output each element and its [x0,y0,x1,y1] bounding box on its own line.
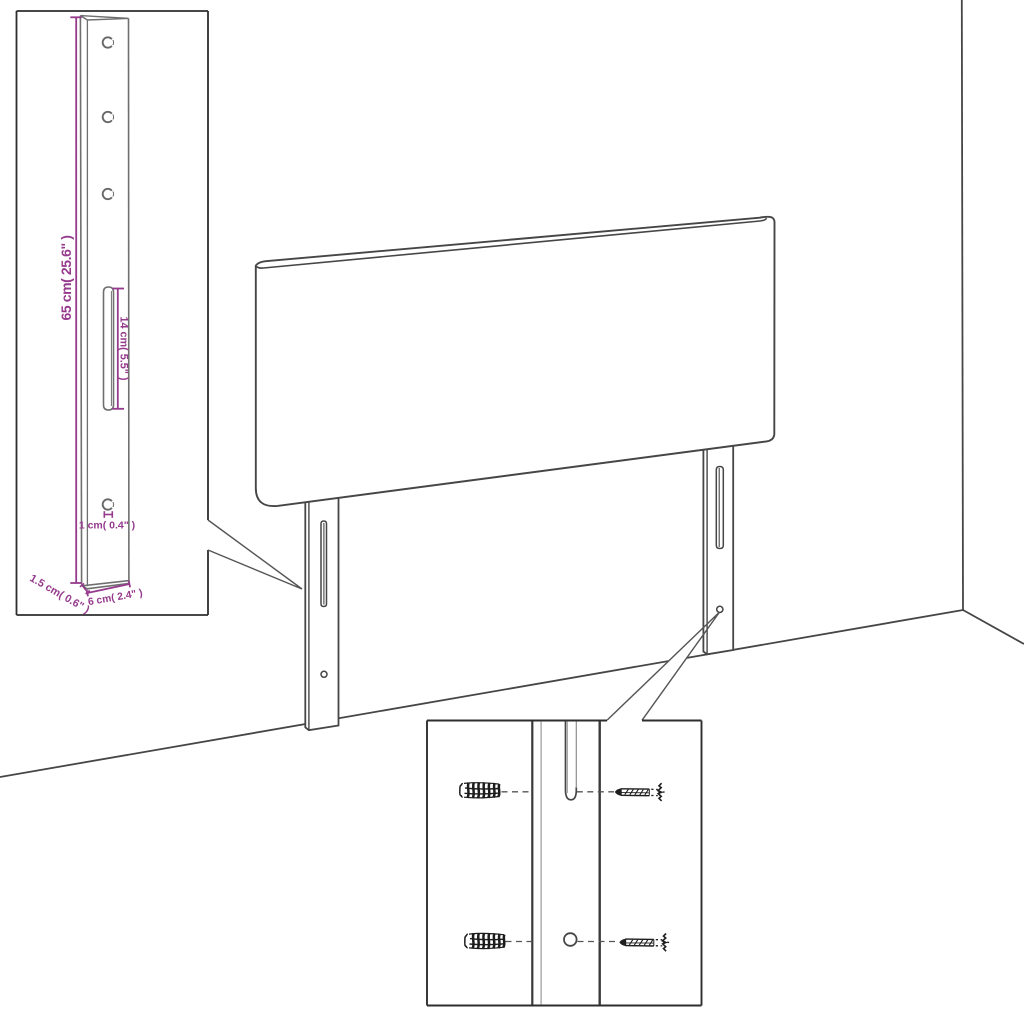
svg-text:14 cm( 5.5" ): 14 cm( 5.5" ) [117,317,129,381]
svg-text:1 cm( 0.4" ): 1 cm( 0.4" ) [79,520,135,532]
svg-text:65 cm( 25.6" ): 65 cm( 25.6" ) [58,235,74,320]
